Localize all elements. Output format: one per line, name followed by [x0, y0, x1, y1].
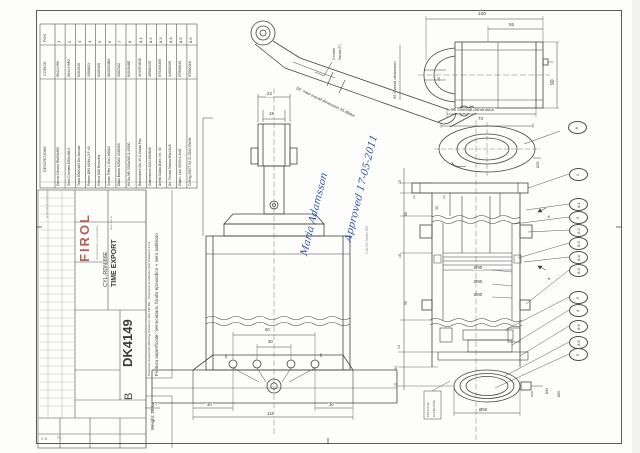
- part-pos: 8.1: [139, 37, 143, 43]
- part-code: 1H45T3845: [139, 58, 143, 77]
- balloon-number: 6: [575, 126, 579, 128]
- dim-label: 90: [551, 79, 556, 85]
- dim-label: 14: [398, 345, 402, 349]
- note-weight: Weight: 20 kg: [151, 403, 156, 430]
- part-desc: Guarn. Led. 80/90 4.2x40: [179, 149, 182, 186]
- balloon-number: 8.4: [577, 255, 581, 261]
- dim-label: Ø8: [320, 353, 323, 357]
- dim-label: 15: [395, 383, 399, 387]
- dim-label: R1/8: [531, 391, 534, 397]
- part-code: 3302302: [118, 63, 122, 77]
- dim-label-bore: Ø80: [473, 280, 483, 284]
- balloon-number: 5: [576, 353, 580, 355]
- part-desc: Snodo 7H6s 1.30x1 M90x2: [108, 146, 111, 186]
- dim-label: 15: [399, 180, 403, 184]
- part-code: 34000105: [169, 61, 173, 77]
- part-desc: O-Ring 2087T/18 21.52x3.53x3H: [189, 138, 192, 186]
- dim-label: Ø50: [478, 408, 488, 412]
- scanned-drawing-page: POS CODICE DESCRIZIONE 10644-H90Canna Ci…: [0, 0, 640, 453]
- dim-label-bore: Ø90: [473, 266, 483, 270]
- note-pressure: Pressione di esercizio (Working Pressure…: [148, 242, 151, 376]
- part-pos: 4: [88, 41, 92, 43]
- qta-note: QTA DIS.4T6736 N.C.: [46, 189, 49, 218]
- part-desc: Pistone Ø80 M26x1.5 P-40: [88, 146, 91, 186]
- part-desc: Anello Guida Diam. Int. 40: [159, 148, 162, 186]
- dim-label: 118: [266, 412, 275, 416]
- dim-label-overall-left: 95 Overall dimension: [393, 61, 397, 99]
- dim-label: 100: [477, 13, 487, 18]
- balloon-6: 6: [568, 121, 587, 134]
- balloon-number: 8.2: [577, 228, 581, 234]
- company-tagline: oleodinamica e pneumatica: [96, 226, 99, 260]
- dim-label: 30: [436, 206, 440, 210]
- balloon-8.3: 8.3: [569, 237, 588, 250]
- part-desc: Ghiera M46 Bronzina: [98, 155, 101, 186]
- dim-label: 45: [438, 77, 442, 81]
- revision-letter: B: [124, 393, 135, 400]
- dim-label: 2: [154, 403, 158, 406]
- dim-label: 95: [405, 301, 409, 305]
- dim-label: 60: [264, 328, 271, 332]
- material-note-2: 10.139-14-30: [433, 400, 436, 417]
- part-code: 5T000045: [179, 61, 183, 77]
- table-header-pos: POS: [44, 34, 48, 42]
- dim-label: 55: [508, 23, 515, 28]
- company-logo: FIROL: [78, 213, 91, 262]
- client-name: TIME EXPORT: [111, 240, 118, 287]
- dim-label: (4): [443, 195, 446, 199]
- balloon-8.4: 8.4: [569, 251, 588, 264]
- part-desc: An. Tenuta Stanca 80x4 A45: [169, 144, 172, 186]
- balloon-2: 2: [569, 291, 588, 304]
- description-label: descrizione: [110, 216, 113, 230]
- dim-label: 30: [328, 403, 335, 407]
- dim-label: 19: [268, 112, 275, 117]
- dim-label: 30: [206, 403, 213, 407]
- part-code: 0644-H9P2: [68, 59, 72, 77]
- balloon-5: 5: [569, 348, 588, 361]
- dim-label: 34: [395, 366, 399, 370]
- balloon-number: 8.3: [577, 241, 581, 247]
- dim-label: (4): [413, 195, 416, 199]
- part-code: 30500415: [149, 61, 153, 77]
- balloon-number: 3: [576, 216, 580, 218]
- dim-label: 73: [477, 117, 484, 122]
- part-desc: Dado Basso M30x2 UNI5589: [118, 143, 121, 186]
- balloon-8.6: 8.6: [569, 320, 588, 333]
- balloon-number: 1: [576, 173, 580, 175]
- balloon-number: 8.6: [577, 324, 581, 330]
- part-pos: 2: [68, 41, 72, 43]
- part-pos: 5: [98, 41, 102, 43]
- part-desc: Kit Gu.NR 3248x040-5-40000: [128, 143, 131, 186]
- iso-label-1: Centrale: [333, 48, 336, 60]
- balloon-number: 8.5: [577, 340, 581, 346]
- part-desc: Canna Cilindro 90x80x365: [57, 147, 60, 186]
- part-desc: Guarnizione AUN 45x50x8: [149, 147, 152, 186]
- page-mark: P.1: [56, 437, 63, 441]
- object-title: CYL.RDN.66E: [104, 252, 110, 287]
- part-pos: 6: [108, 41, 112, 43]
- balloon-4: 4: [569, 304, 588, 317]
- part-desc: Raschiatore DU 40 C.Guida Fas.: [139, 138, 142, 186]
- iso-label-2: Gamba (F): [339, 45, 342, 60]
- table-header-desc: DESCRIZIONE: [44, 146, 48, 172]
- corner-mark: E.B.: [40, 437, 50, 441]
- part-code: 5404045: [78, 63, 82, 77]
- drawing-number: DK4149: [121, 319, 134, 367]
- dim-label-bore: Ø80: [473, 293, 483, 297]
- part-code: 5T5400305: [159, 59, 163, 77]
- part-pos: 8.2: [149, 37, 153, 43]
- part-code: 0644-H90: [57, 61, 61, 77]
- dim-label: 22: [266, 92, 273, 97]
- dim-label: Ø8: [225, 354, 228, 358]
- part-desc: Testa 80x91x60 Din Acciaio: [78, 146, 81, 186]
- material-note-1: PFE bronze: [427, 402, 430, 417]
- part-pos: 8.5: [179, 37, 183, 43]
- note-finish: Finitura superficiale: Verniciatura: fon…: [156, 233, 161, 376]
- balloon-8.1: 8.1: [569, 198, 588, 211]
- part-pos: 8.6: [189, 37, 193, 43]
- part-pos: 8.4: [169, 37, 173, 43]
- dim-label: 30: [267, 340, 274, 344]
- balloon-number: 2: [576, 296, 580, 298]
- part-code: 8404046E: [128, 61, 132, 77]
- part-code: 5T000116: [189, 61, 193, 77]
- part-code: 6100405: [98, 63, 102, 77]
- balloon-8.2: 8.2: [569, 224, 588, 237]
- part-pos: 8: [128, 41, 132, 43]
- part-pos: 8.3: [159, 37, 163, 43]
- dim-label: 18: [399, 254, 403, 258]
- balloon-number: 8.1: [577, 202, 581, 208]
- stroke-note: L=th+63 Stroke 363: [366, 226, 369, 254]
- balloon-1: 1: [569, 168, 588, 181]
- balloon-3: 3: [569, 211, 588, 224]
- dim-label-overall-bottom: 95 Overall dimension: [450, 108, 495, 113]
- dim-label: Ø25: [537, 161, 541, 168]
- dim-label: Ø20: [558, 391, 561, 397]
- section-mark-a: A: [548, 277, 552, 280]
- dim-label: Ø13: [546, 388, 549, 394]
- part-pos: 3: [78, 41, 82, 43]
- part-desc: Stelo Cromato Ø30x468.5: [68, 148, 71, 186]
- dim-label: 88: [405, 212, 409, 216]
- part-code: 3300813: [88, 63, 92, 77]
- section-mark-a: A: [548, 215, 552, 218]
- balloon-number: 4: [576, 309, 580, 311]
- balloon-number: 8.3: [577, 268, 581, 274]
- part-pos: 1: [57, 41, 61, 43]
- part-code: 0615033B6: [108, 59, 112, 77]
- table-header-code: CODICE: [44, 61, 48, 76]
- balloon-8.3: 8.3: [569, 264, 588, 277]
- part-pos: 7: [118, 41, 122, 43]
